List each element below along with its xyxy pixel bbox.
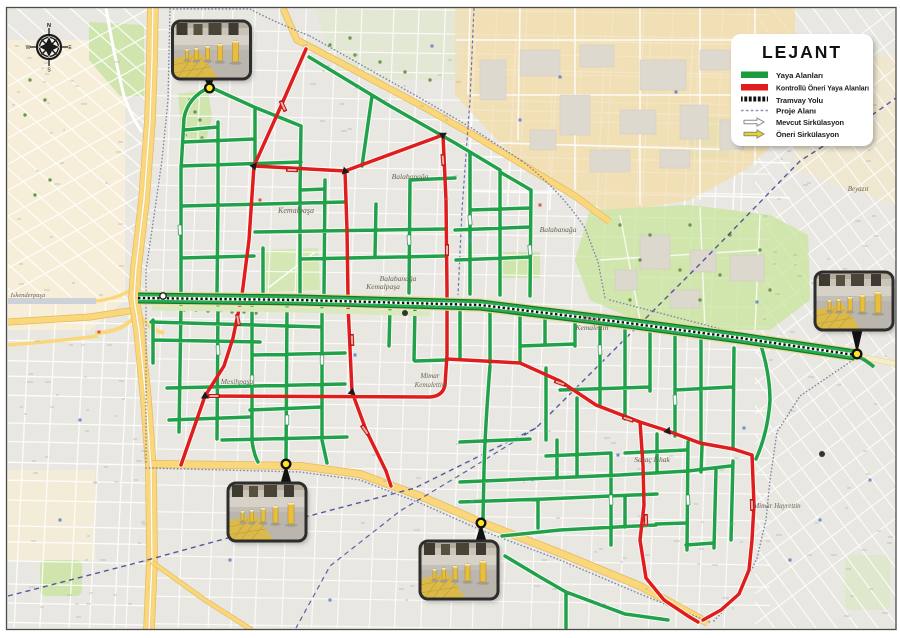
svg-text:Balabanağa: Balabanağa	[540, 225, 577, 234]
svg-text:Proje Alanı: Proje Alanı	[776, 107, 816, 116]
svg-text:Mimar: Mimar	[581, 314, 602, 323]
svg-text:İskenderpaşa: İskenderpaşa	[10, 292, 46, 299]
svg-text:Kemalettin: Kemalettin	[414, 381, 446, 389]
svg-text:Yaya Alanları: Yaya Alanları	[776, 71, 823, 80]
svg-text:Kemalpaşa: Kemalpaşa	[277, 206, 314, 215]
svg-text:Öneri Sirkülasyon: Öneri Sirkülasyon	[776, 130, 840, 139]
svg-text:Kemalpaşa: Kemalpaşa	[365, 282, 400, 291]
svg-text:Balabanağa: Balabanağa	[392, 172, 429, 181]
svg-text:Kemalettin: Kemalettin	[575, 323, 609, 332]
svg-text:Balabanağa: Balabanağa	[380, 274, 417, 283]
svg-text:Mimar: Mimar	[419, 372, 439, 380]
svg-text:N: N	[47, 23, 51, 29]
svg-text:Mesihpaşa: Mesihpaşa	[220, 377, 254, 386]
svg-text:Mimar Hayrettin: Mimar Hayrettin	[752, 502, 801, 510]
svg-text:Beyazıt: Beyazıt	[848, 185, 870, 193]
svg-text:Kontrollü Öneri Yaya Alanları: Kontrollü Öneri Yaya Alanları	[776, 84, 869, 93]
svg-text:Saraç İshak: Saraç İshak	[634, 455, 670, 464]
svg-text:Tramvay Yolu: Tramvay Yolu	[776, 96, 824, 105]
svg-text:Mevcut Sirkülasyon: Mevcut Sirkülasyon	[776, 118, 845, 127]
svg-text:W: W	[26, 45, 31, 51]
svg-text:LEJANT: LEJANT	[762, 42, 842, 62]
